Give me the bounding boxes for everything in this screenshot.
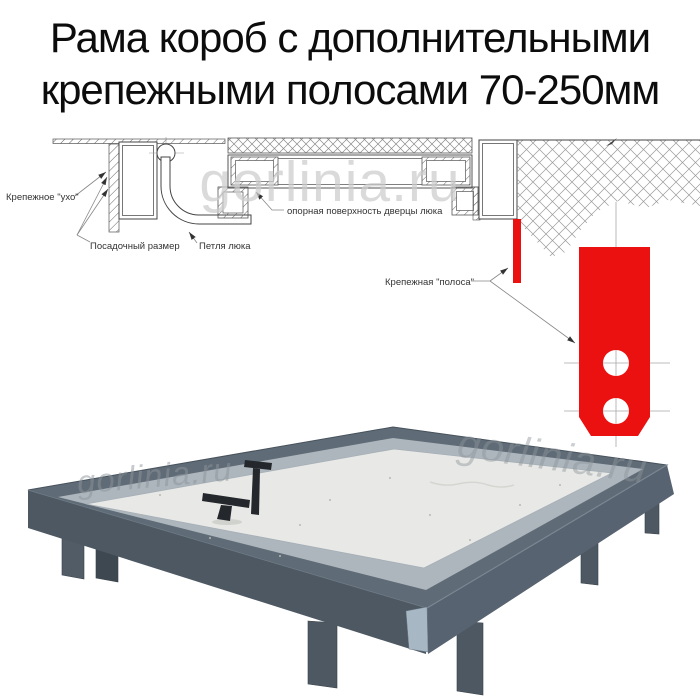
frame-profile-right: [473, 140, 517, 220]
frame-profile-left: [109, 142, 157, 232]
technical-diagram: Крепежное "ухо" Посадочный размер Петля …: [6, 137, 700, 447]
product-illustration: Крепежное "ухо" Посадочный размер Петля …: [0, 0, 700, 700]
frame-profile-left-outer: [119, 142, 157, 219]
label-mounting-strip: Крепежная "полоса": [385, 277, 474, 288]
watermark-diagram: gorlinia.ru: [199, 150, 460, 214]
label-seating-size: Посадочный размер: [90, 241, 180, 252]
wall-section: [517, 138, 700, 257]
mounting-ear-hatch: [109, 144, 119, 232]
label-hatch-hinge: Петля люка: [199, 241, 251, 252]
product-photo: gorlinia.ru gorlinia.ru: [28, 420, 674, 695]
label-mounting-ear: Крепежное "ухо": [6, 192, 79, 203]
frame-channel-end: [406, 607, 428, 652]
mounting-strip-section: [513, 219, 521, 283]
leg-front-left: [308, 621, 337, 688]
mounting-strip-detail: [579, 247, 650, 436]
product-card: Рама короб с дополнительными крепежными …: [0, 0, 700, 700]
